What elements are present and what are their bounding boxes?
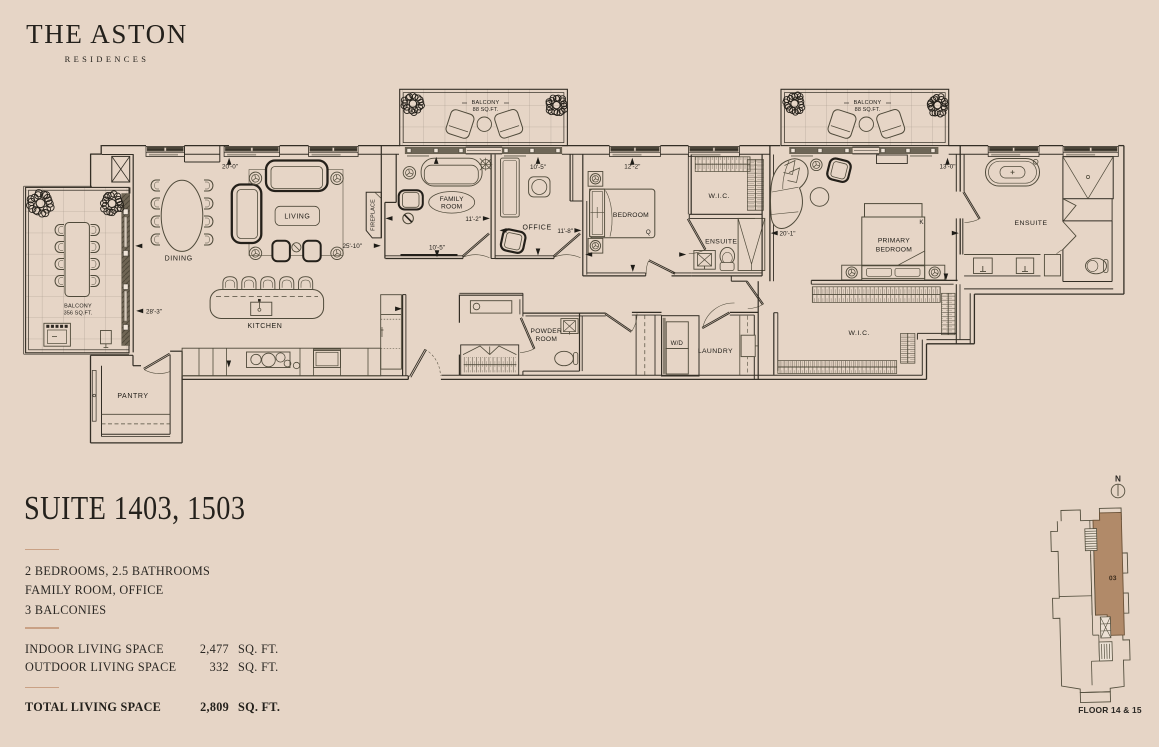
- svg-text:LAUNDRY: LAUNDRY: [698, 348, 733, 355]
- svg-text:PRIMARY: PRIMARY: [878, 237, 910, 244]
- svg-text:OFFICE: OFFICE: [522, 225, 551, 232]
- svg-text:13'-0": 13'-0": [939, 164, 955, 171]
- svg-text:10'-5": 10'-5": [530, 164, 546, 171]
- svg-text:POWDER: POWDER: [531, 328, 562, 335]
- svg-text:10'-5": 10'-5": [429, 244, 445, 251]
- svg-text:DINING: DINING: [165, 256, 193, 263]
- svg-text:Q: Q: [646, 229, 651, 236]
- svg-text:20'-0": 20'-0": [222, 164, 238, 171]
- svg-text:ROOM: ROOM: [441, 203, 462, 210]
- svg-text:BEDROOM: BEDROOM: [613, 212, 649, 219]
- svg-text:03: 03: [1109, 575, 1117, 582]
- svg-text:20'-1": 20'-1": [780, 231, 796, 238]
- svg-text:W/D: W/D: [671, 340, 684, 347]
- svg-text:W.I.C.: W.I.C.: [848, 330, 870, 337]
- svg-text:88 SQ.FT.: 88 SQ.FT.: [473, 107, 499, 113]
- svg-text:ROOM: ROOM: [535, 336, 557, 343]
- svg-text:BALCONY: BALCONY: [854, 100, 882, 106]
- svg-text:28'-3": 28'-3": [146, 308, 162, 315]
- svg-text:FLOOR 14 & 15: FLOOR 14 & 15: [1078, 705, 1142, 715]
- svg-text:N: N: [1115, 475, 1121, 484]
- svg-text:ENSUITE: ENSUITE: [1015, 220, 1048, 227]
- svg-text:12'-2": 12'-2": [624, 164, 640, 171]
- svg-text:ENSUITE: ENSUITE: [705, 238, 737, 245]
- svg-text:25'-10": 25'-10": [342, 243, 362, 250]
- svg-text:BEDROOM: BEDROOM: [876, 246, 912, 253]
- svg-text:PANTRY: PANTRY: [117, 393, 148, 400]
- svg-text:W.I.C.: W.I.C.: [709, 193, 731, 200]
- svg-text:KITCHEN: KITCHEN: [248, 323, 283, 330]
- svg-text:11'-2": 11'-2": [465, 216, 481, 223]
- svg-text:FAMILY: FAMILY: [440, 196, 465, 203]
- svg-text:11'-8": 11'-8": [557, 228, 573, 235]
- svg-text:88 SQ.FT.: 88 SQ.FT.: [855, 107, 881, 113]
- svg-text:BALCONY: BALCONY: [472, 100, 500, 106]
- svg-text:LIVING: LIVING: [284, 214, 310, 221]
- svg-text:BALCONY: BALCONY: [64, 304, 92, 310]
- svg-text:FIREPLACE: FIREPLACE: [370, 199, 376, 231]
- svg-text:356 SQ.FT.: 356 SQ.FT.: [64, 310, 93, 316]
